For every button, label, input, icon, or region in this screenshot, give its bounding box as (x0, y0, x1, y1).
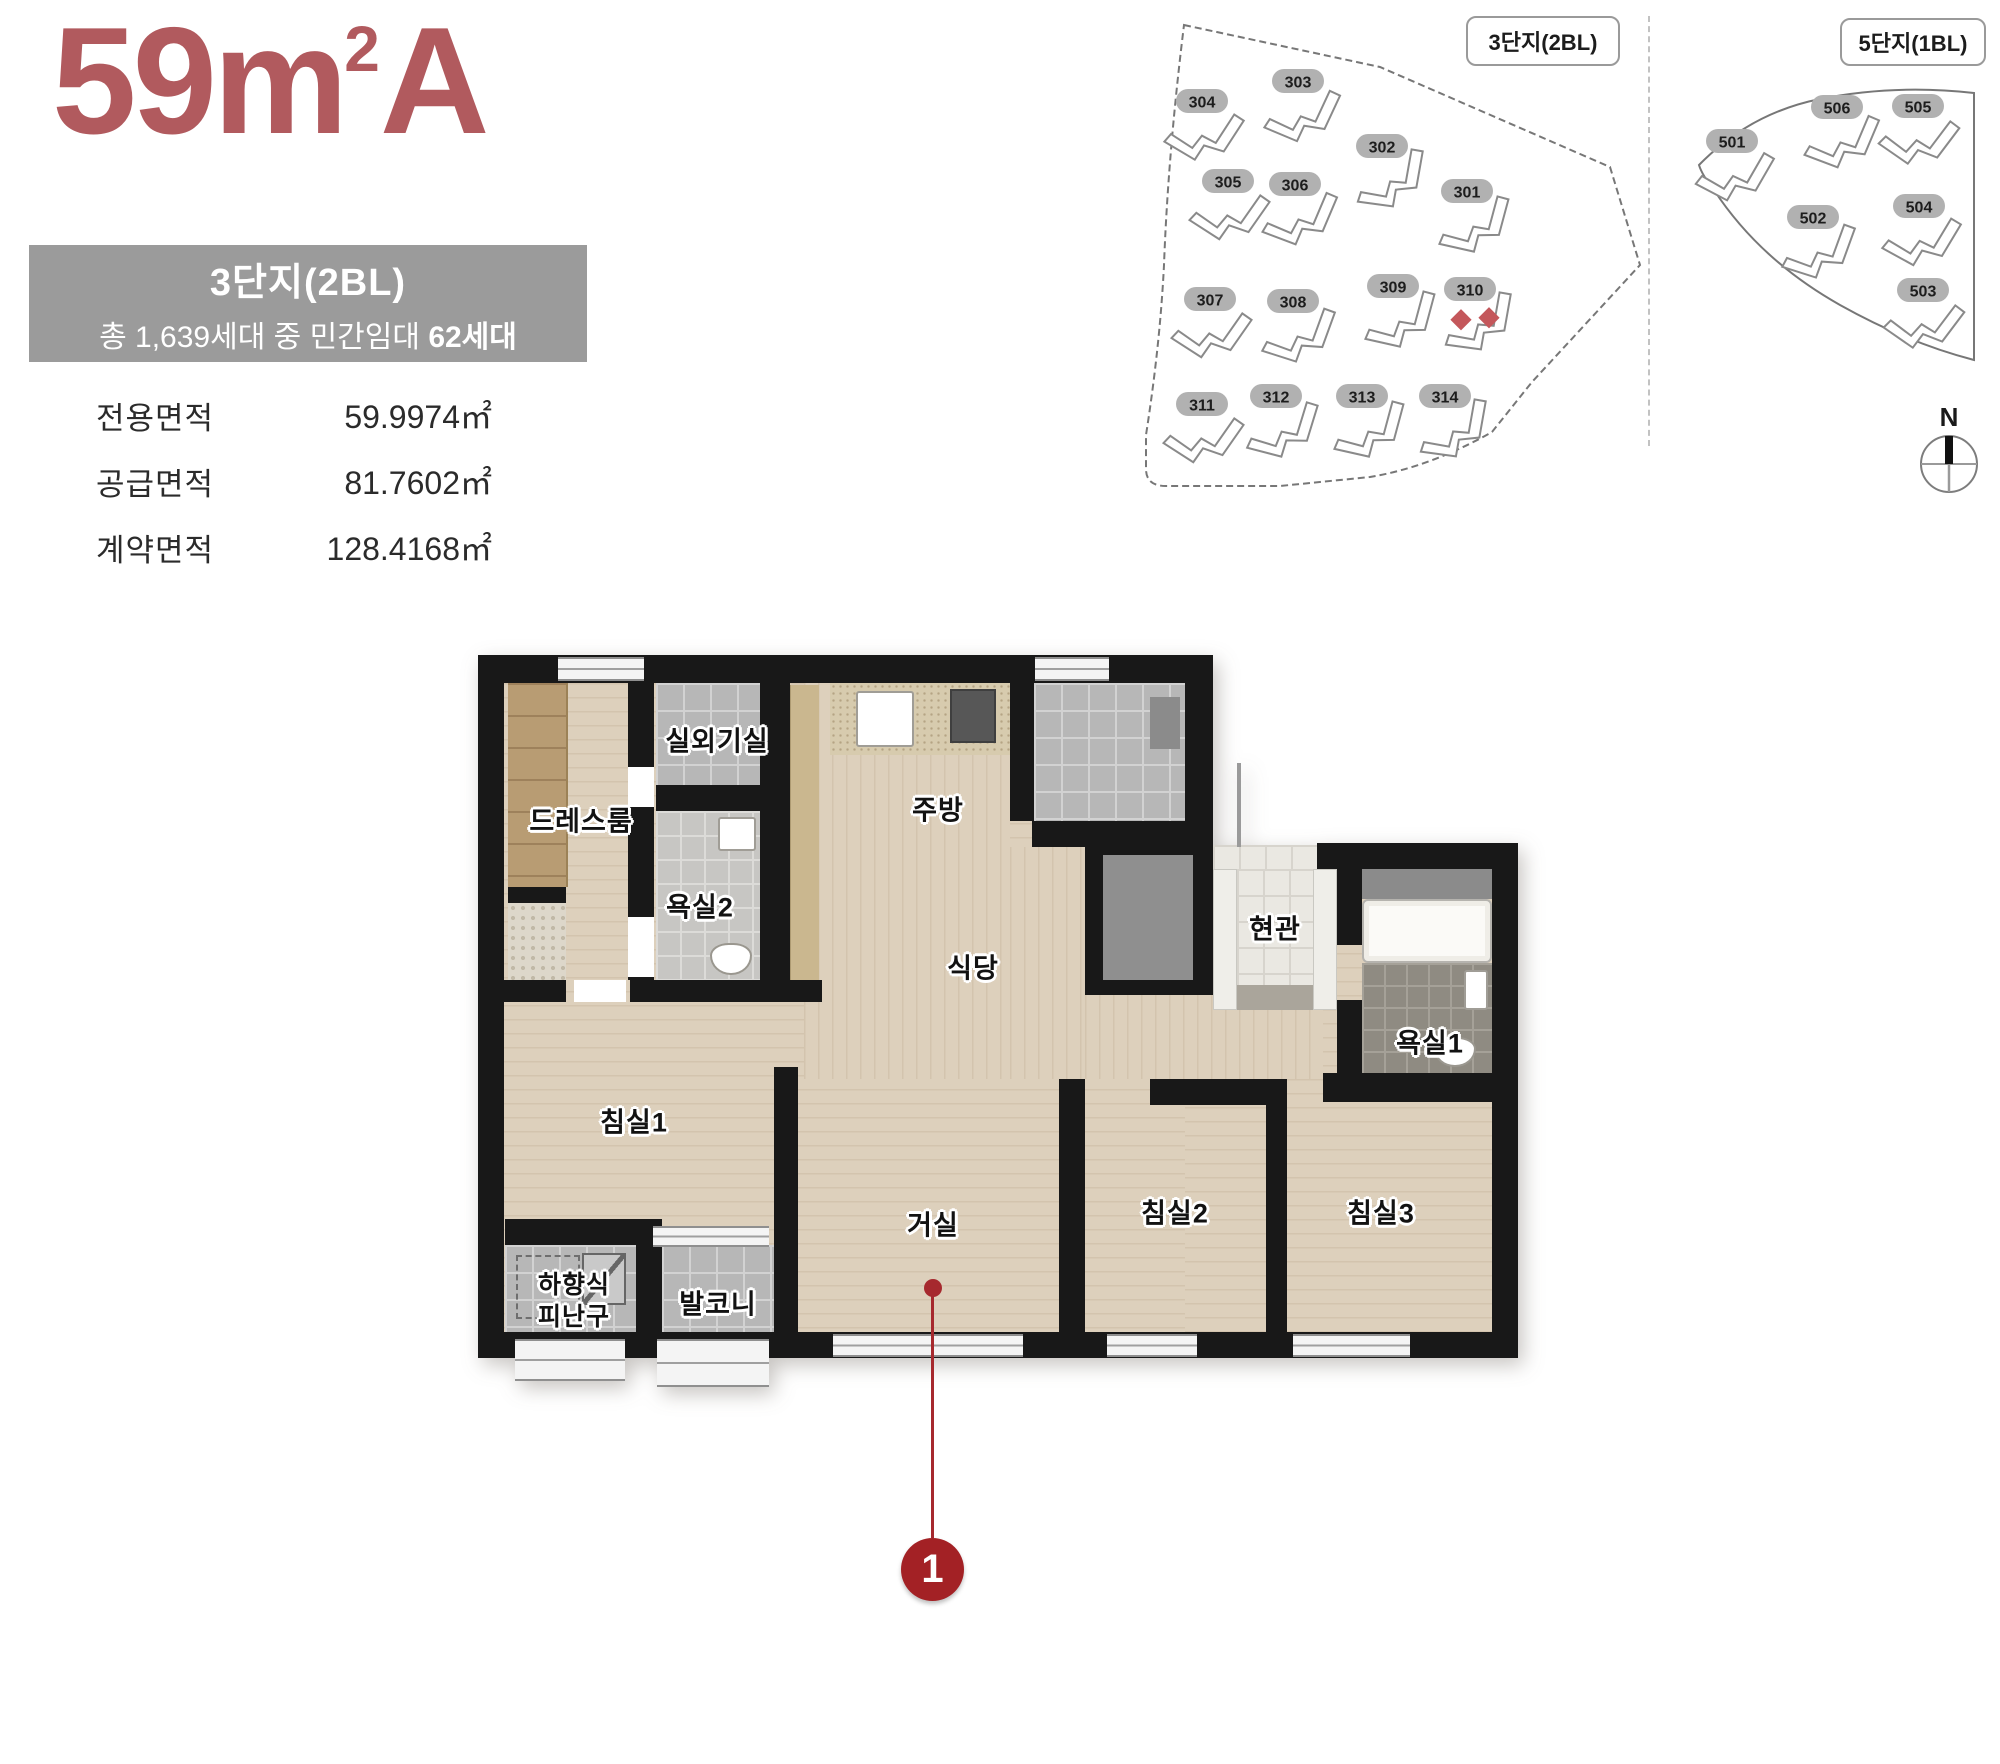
area-table: 전용면적 59.9974㎡ 공급면적 81.7602㎡ 계약면적 128.416… (60, 382, 492, 580)
highlighted-unit-mark (1450, 309, 1471, 330)
table-row: 공급면적 81.7602㎡ (60, 448, 492, 514)
building-309: 309 (1359, 274, 1448, 360)
building-312: 312 (1241, 384, 1330, 469)
building-number: 310 (1457, 283, 1484, 300)
complex-name: 3단지(2BL) (29, 251, 587, 306)
bathroom1-bathtub (1362, 899, 1492, 963)
page-title: 59m2A (52, 2, 486, 162)
room-label-hatch-line2: 피난구 (538, 1297, 610, 1333)
building-footprint (1257, 305, 1347, 372)
complex-info-box: 3단지(2BL) 총 1,639세대 중 민간임대 62세대 (29, 245, 587, 362)
wall-bed2-top (1150, 1079, 1287, 1105)
building-footprint (1260, 88, 1349, 150)
building-305: 305 (1187, 169, 1274, 244)
building-number: 306 (1282, 178, 1309, 195)
bathroom2-sink (718, 817, 756, 851)
window-top-left (558, 657, 644, 681)
wall-stub (508, 887, 566, 903)
building-footprint (1777, 221, 1867, 288)
building-506: 506 (1800, 95, 1890, 177)
area-label: 공급면적 (96, 459, 214, 504)
entry-threshold (1213, 845, 1317, 870)
floor-wood-hall (1010, 847, 1085, 1079)
building-number: 308 (1280, 295, 1307, 312)
building-505: 505 (1877, 94, 1963, 167)
room-label-bath2: 욕실2 (666, 886, 734, 925)
svg-text:N: N (1940, 402, 1959, 432)
room-label-hatch-line1: 하향식 (538, 1265, 610, 1301)
building-number: 314 (1432, 390, 1459, 407)
room-label-bed3: 침실3 (1347, 1192, 1415, 1231)
table-row: 전용면적 59.9974㎡ (60, 382, 492, 448)
room-label-dining: 식당 (947, 947, 999, 986)
building-308: 308 (1257, 289, 1347, 373)
room-label-kitchen: 주방 (912, 789, 964, 828)
window-bed3 (1293, 1334, 1410, 1357)
wall-utility-bottom (1032, 821, 1213, 847)
entry-door-frame (1237, 763, 1241, 847)
title-unit: m (213, 0, 344, 166)
site-map-3danji-title: 3단지(2BL) (1466, 16, 1620, 66)
entry-cabinet-left (1213, 869, 1237, 1010)
kitchen-stove (950, 689, 996, 743)
room-label-bed1: 침실1 (600, 1101, 668, 1140)
building-314: 314 (1414, 384, 1502, 471)
window-bed1-balcony (653, 1226, 769, 1247)
building-footprint (1877, 120, 1963, 167)
building-301: 301 (1433, 179, 1522, 265)
building-number: 305 (1215, 175, 1242, 192)
building-footprint (1328, 397, 1417, 469)
room-label-living: 거실 (907, 1204, 959, 1243)
unit-marker-line (931, 1296, 934, 1538)
wall-notch-vertical (1185, 655, 1213, 847)
entry-mat (1237, 985, 1313, 1010)
building-number: 304 (1189, 95, 1216, 112)
building-number: 309 (1380, 280, 1407, 297)
building-302: 302 (1351, 134, 1439, 221)
bathroom1-sink (1464, 970, 1488, 1010)
building-footprint (1359, 287, 1448, 359)
complex-units-bold: 62세대 (428, 321, 517, 354)
floor-plan: 실외기실 드레스룸 주방 욕실2 식당 현관 욕실1 침실1 거실 침실2 침실… (478, 655, 1518, 1400)
site-map-title-text: 5단지(1BL) (1859, 26, 1968, 58)
area-value: 59.9974㎡ (344, 392, 492, 438)
room-label-dress: 드레스룸 (529, 800, 632, 839)
complex-units-prefix: 총 1,639세대 중 민간임대 (99, 321, 428, 354)
building-number: 313 (1349, 390, 1376, 407)
unit-marker-badge: 1 (901, 1538, 964, 1601)
title-superscript: 2 (344, 13, 380, 85)
map-divider (1648, 16, 1650, 446)
wall-utility-left (1010, 683, 1034, 821)
title-number: 59 (52, 0, 213, 166)
wall-living-bed2 (1059, 1079, 1085, 1332)
building-number: 307 (1197, 293, 1224, 310)
building-311: 311 (1161, 392, 1248, 467)
building-313: 313 (1328, 384, 1417, 470)
room-label-bed2: 침실2 (1141, 1192, 1209, 1231)
building-number: 505 (1905, 100, 1932, 117)
site-map-title-text: 3단지(2BL) (1489, 25, 1598, 57)
room-label-outdoor-unit: 실외기실 (665, 720, 768, 759)
building-502: 502 (1777, 205, 1867, 289)
building-footprint (1162, 113, 1250, 165)
building-303: 303 (1260, 69, 1349, 150)
building-306: 306 (1258, 172, 1348, 254)
building-307: 307 (1169, 287, 1256, 362)
room-label-entry: 현관 (1249, 908, 1301, 947)
building-footprint (1169, 312, 1256, 362)
building-number: 312 (1263, 390, 1290, 407)
room-label-bath1: 욕실1 (1396, 1022, 1464, 1061)
building-504: 504 (1879, 194, 1967, 271)
storage-niche (508, 903, 566, 983)
unit-marker-number: 1 (921, 1547, 943, 1592)
area-value: 81.7602㎡ (344, 458, 492, 504)
room-label-balcony: 발코니 (679, 1283, 757, 1322)
wall-entry-bath1-b (1337, 1000, 1362, 1073)
building-number: 501 (1719, 135, 1746, 152)
wall-hatch-top (505, 1219, 640, 1245)
wall-block-bottom (630, 980, 822, 1002)
title-suffix: A (380, 0, 486, 166)
compass-icon: N (1908, 396, 1990, 506)
window-balcony (657, 1339, 769, 1387)
wall-outer-right (1492, 843, 1518, 1358)
bathroom1-shelf (1362, 869, 1492, 899)
wall-bed1-living (774, 1067, 798, 1332)
building-number: 303 (1285, 75, 1312, 92)
dressroom-closet (508, 683, 568, 887)
wall-under-outdoor-unit (656, 785, 760, 811)
area-label: 전용면적 (96, 393, 214, 438)
building-footprint (1433, 192, 1522, 264)
unit-marker-dot (924, 1279, 942, 1297)
elevator-shaft (1103, 855, 1193, 980)
building-310: 310 (1439, 277, 1527, 364)
complex-units: 총 1,639세대 중 민간임대 62세대 (29, 312, 587, 356)
building-501: 501 (1693, 129, 1782, 207)
area-label: 계약면적 (96, 525, 214, 570)
site-map-5danji-title: 5단지(1BL) (1840, 18, 1986, 66)
wall-bed2-bed3 (1266, 1105, 1287, 1332)
building-number: 311 (1189, 398, 1215, 415)
building-footprint (1258, 190, 1348, 254)
window-top-utility (1035, 657, 1109, 681)
door-gap-dress (574, 980, 626, 1002)
entry-cabinet-right (1313, 869, 1337, 1010)
building-number: 504 (1906, 200, 1933, 217)
building-footprint (1800, 113, 1890, 177)
window-bed2 (1107, 1334, 1197, 1357)
wall-entry-bath1-a (1337, 869, 1362, 945)
table-row: 계약면적 128.4168㎡ (60, 514, 492, 580)
building-number: 506 (1824, 101, 1851, 118)
building-number: 302 (1369, 140, 1396, 157)
utility-equipment (1150, 697, 1180, 749)
building-footprint (1187, 194, 1274, 244)
wall-right-block-top (1317, 843, 1518, 869)
area-value: 128.4168㎡ (327, 524, 492, 570)
wall-block-bottom-left (504, 980, 566, 1002)
site-map-3danji: 3033043023053063013073083093103113123133… (1130, 5, 1650, 505)
wall-bath1-bottom (1323, 1073, 1492, 1102)
brochure-page: 59m2A 3단지(2BL) 총 1,639세대 중 민간임대 62세대 전용면… (0, 0, 2000, 1764)
kitchen-tall-cabinet (790, 685, 819, 985)
building-footprint (1879, 217, 1967, 272)
building-number: 503 (1910, 284, 1937, 301)
window-living (833, 1334, 1023, 1357)
door-gap-bath2 (628, 917, 654, 977)
building-footprint (1161, 417, 1248, 467)
kitchen-sink (856, 691, 914, 747)
building-footprint (1241, 399, 1330, 469)
building-number: 301 (1454, 185, 1481, 202)
building-503: 503 (1882, 278, 1968, 351)
wall-outer-left (478, 655, 504, 1358)
building-number: 502 (1800, 211, 1827, 228)
window-hatch (515, 1339, 625, 1381)
